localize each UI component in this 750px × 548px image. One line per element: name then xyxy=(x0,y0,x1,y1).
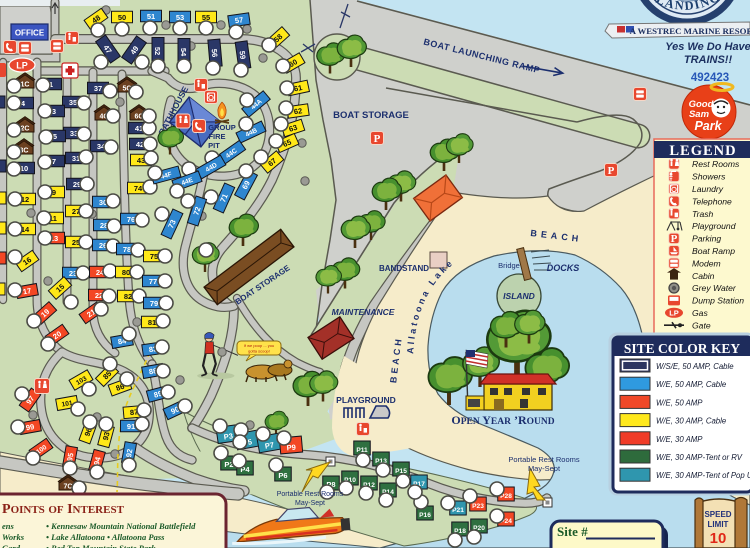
svg-text:PLAYGROUND: PLAYGROUND xyxy=(336,395,396,405)
svg-text:Gate: Gate xyxy=(692,320,711,330)
svg-text:Dump Station: Dump Station xyxy=(692,296,744,306)
svg-text:Portable Rest Rooms: Portable Rest Rooms xyxy=(508,455,580,464)
svg-text:P16: P16 xyxy=(419,512,431,519)
svg-text:79: 79 xyxy=(150,299,158,308)
svg-text:Gas: Gas xyxy=(692,308,708,318)
svg-text:Laundry: Laundry xyxy=(692,184,724,194)
svg-text:Parking: Parking xyxy=(692,234,721,244)
svg-text:52: 52 xyxy=(153,47,162,55)
svg-text:Modem: Modem xyxy=(692,258,721,268)
svg-text:1C: 1C xyxy=(21,82,30,89)
svg-text:7C: 7C xyxy=(64,484,73,491)
svg-text:99: 99 xyxy=(25,422,35,432)
svg-text:OFFICE: OFFICE xyxy=(15,29,45,38)
svg-text:POINTS OF INTEREST: POINTS OF INTEREST xyxy=(2,502,125,517)
svg-text:91: 91 xyxy=(127,422,135,431)
svg-text:LP: LP xyxy=(16,61,28,71)
svg-text:P23: P23 xyxy=(472,503,484,510)
svg-text:P3: P3 xyxy=(223,431,233,441)
svg-text:Cabin: Cabin xyxy=(692,271,715,281)
svg-text:50: 50 xyxy=(118,13,126,22)
svg-text:A WESTREC MARINE RESORT: A WESTREC MARINE RESORT xyxy=(630,26,750,36)
svg-text:P6: P6 xyxy=(278,471,287,480)
svg-text:Playground: Playground xyxy=(692,221,736,231)
svg-text:W/E, 30 AMP-Tent of Pop Up: W/E, 30 AMP-Tent of Pop Up xyxy=(656,471,750,480)
svg-text:92: 92 xyxy=(124,448,134,458)
svg-text:• Lake Allatoona • Allatoona P: • Lake Allatoona • Allatoona Pass xyxy=(46,532,165,542)
svg-text:W/E, 30 AMP, Cable: W/E, 30 AMP, Cable xyxy=(656,417,727,426)
svg-text:W/E, 30 AMP-Tent or RV: W/E, 30 AMP-Tent or RV xyxy=(656,453,743,462)
svg-text:May-Sept: May-Sept xyxy=(295,500,325,507)
svg-text:P: P xyxy=(671,233,678,245)
svg-text:FIRE: FIRE xyxy=(208,132,225,141)
svg-text:Yes We Do Have: Yes We Do Have xyxy=(665,41,750,53)
svg-text:54: 54 xyxy=(179,48,188,57)
svg-text:74: 74 xyxy=(134,184,143,193)
svg-text:Rest Rooms: Rest Rooms xyxy=(692,159,740,169)
svg-text:62: 62 xyxy=(293,106,303,116)
svg-text:10: 10 xyxy=(710,530,727,547)
svg-text:P: P xyxy=(374,133,381,145)
svg-text:Portable Rest Rooms: Portable Rest Rooms xyxy=(277,491,344,498)
svg-text:SITE COLOR KEY: SITE COLOR KEY xyxy=(624,341,741,356)
svg-text:W/E, 50 AMP: W/E, 50 AMP xyxy=(656,398,703,407)
svg-text:59: 59 xyxy=(237,50,247,60)
svg-text:W/E, 50 AMP, Cable: W/E, 50 AMP, Cable xyxy=(656,380,727,389)
svg-text:75: 75 xyxy=(150,252,158,261)
svg-text:LP: LP xyxy=(669,309,679,318)
svg-text:51: 51 xyxy=(147,12,155,21)
svg-text:W/S/E, 50 AMP, Cable: W/S/E, 50 AMP, Cable xyxy=(656,362,734,371)
svg-text:W/E, 30 AMP: W/E, 30 AMP xyxy=(656,435,703,444)
svg-text:77: 77 xyxy=(149,277,157,286)
svg-text:MAINTENANCE: MAINTENANCE xyxy=(332,307,395,317)
svg-text:78: 78 xyxy=(123,245,131,254)
svg-text:DOCKS: DOCKS xyxy=(547,263,580,273)
svg-text:P7: P7 xyxy=(264,440,275,450)
svg-text:Telephone: Telephone xyxy=(692,196,732,206)
svg-text:Bridge: Bridge xyxy=(498,261,520,270)
svg-text:LEGEND: LEGEND xyxy=(669,143,736,159)
svg-text:Gard: Gard xyxy=(2,543,21,548)
svg-text:SPEED: SPEED xyxy=(704,510,731,519)
svg-text:80: 80 xyxy=(122,268,130,277)
svg-text:gotta scoop!: gotta scoop! xyxy=(248,349,270,354)
svg-text:May-Sept: May-Sept xyxy=(528,464,561,473)
svg-text:82: 82 xyxy=(124,292,132,301)
svg-text:GROUP: GROUP xyxy=(208,123,236,132)
svg-text:Park: Park xyxy=(694,119,722,133)
svg-text:P: P xyxy=(608,165,615,177)
svg-text:17: 17 xyxy=(22,286,32,296)
svg-text:Boat Ramp: Boat Ramp xyxy=(692,246,735,256)
svg-text:ens: ens xyxy=(2,521,15,531)
svg-text:BANDSTAND: BANDSTAND xyxy=(379,264,429,273)
svg-text:Showers: Showers xyxy=(692,172,726,182)
svg-text:TRAINS!!: TRAINS!! xyxy=(684,54,733,66)
svg-text:Works: Works xyxy=(2,532,25,542)
svg-text:Grey Water: Grey Water xyxy=(692,283,737,293)
svg-text:35: 35 xyxy=(69,98,77,107)
svg-text:57: 57 xyxy=(234,15,244,25)
svg-text:81: 81 xyxy=(148,318,156,327)
svg-text:• Red Top Mountain State Park: • Red Top Mountain State Park xyxy=(46,543,156,548)
svg-text:If we poop ... you: If we poop ... you xyxy=(244,343,274,348)
svg-text:2C: 2C xyxy=(21,126,30,133)
svg-text:PIT: PIT xyxy=(208,141,220,150)
svg-text:BOAT STORAGE: BOAT STORAGE xyxy=(333,110,409,121)
svg-text:76: 76 xyxy=(127,215,135,224)
svg-text:LIMIT: LIMIT xyxy=(708,520,729,529)
svg-text:• Kennesaw Mountain National B: • Kennesaw Mountain National Battlefield xyxy=(46,521,196,531)
svg-text:Site #: Site # xyxy=(557,524,588,539)
svg-text:ISLAND: ISLAND xyxy=(503,291,535,301)
svg-text:37: 37 xyxy=(94,84,102,93)
svg-text:56: 56 xyxy=(210,48,220,57)
svg-text:Trash: Trash xyxy=(692,209,714,219)
